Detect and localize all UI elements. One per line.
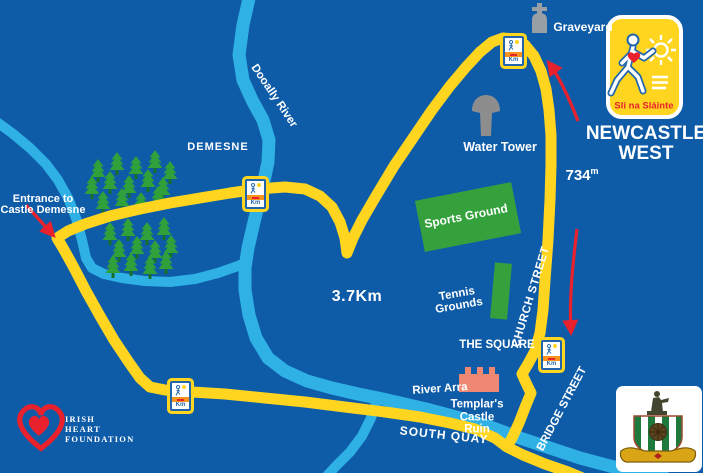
km-marker-south-quay: Km xyxy=(170,381,191,411)
map-graphic xyxy=(0,0,703,473)
km-marker-figure-icon xyxy=(507,38,520,52)
demesne-label: DEMESNE xyxy=(187,141,248,153)
segment-distance-label: 734m xyxy=(565,166,598,184)
graveyard-label: Graveyard xyxy=(553,20,612,34)
km-marker-demesne: Km xyxy=(245,179,266,209)
graveyard-icon xyxy=(532,3,547,33)
km-marker-label: Km xyxy=(547,361,557,368)
water-tower-label: Water Tower xyxy=(463,140,537,154)
km-marker-band xyxy=(543,356,560,361)
km-marker-band xyxy=(172,397,189,402)
total-distance-label: 3.7Km xyxy=(332,288,383,306)
sli-na-slainte-logo-text: Slí na Sláinte xyxy=(614,101,673,112)
km-marker-band xyxy=(505,52,522,57)
water-tower-icon xyxy=(472,95,500,136)
km-marker-label: Km xyxy=(509,57,519,64)
km-marker-label: Km xyxy=(176,402,186,409)
km-marker-label: Km xyxy=(251,200,261,207)
ihf-heart-icon xyxy=(20,407,63,449)
km-marker-square: Km xyxy=(541,340,562,370)
km-marker-figure-icon xyxy=(249,181,262,195)
km-marker-north: Km xyxy=(503,36,524,66)
walking-route-map: Km Km Km Km Grave xyxy=(0,0,703,473)
the-square-label: THE SQUARE xyxy=(459,339,534,351)
tennis-grounds-area xyxy=(490,262,512,319)
km-marker-figure-icon xyxy=(174,383,187,397)
segment-arrow-down xyxy=(570,229,577,332)
ihf-wordmark: IRISH HEART FOUNDATION xyxy=(65,414,134,444)
km-marker-figure-icon xyxy=(545,342,558,356)
km-marker-band xyxy=(247,195,264,200)
entrance-label: Entrance to Castle Demesne xyxy=(1,194,86,216)
town-crest xyxy=(616,386,702,472)
page-title: NEWCASTLE WEST xyxy=(586,124,703,164)
